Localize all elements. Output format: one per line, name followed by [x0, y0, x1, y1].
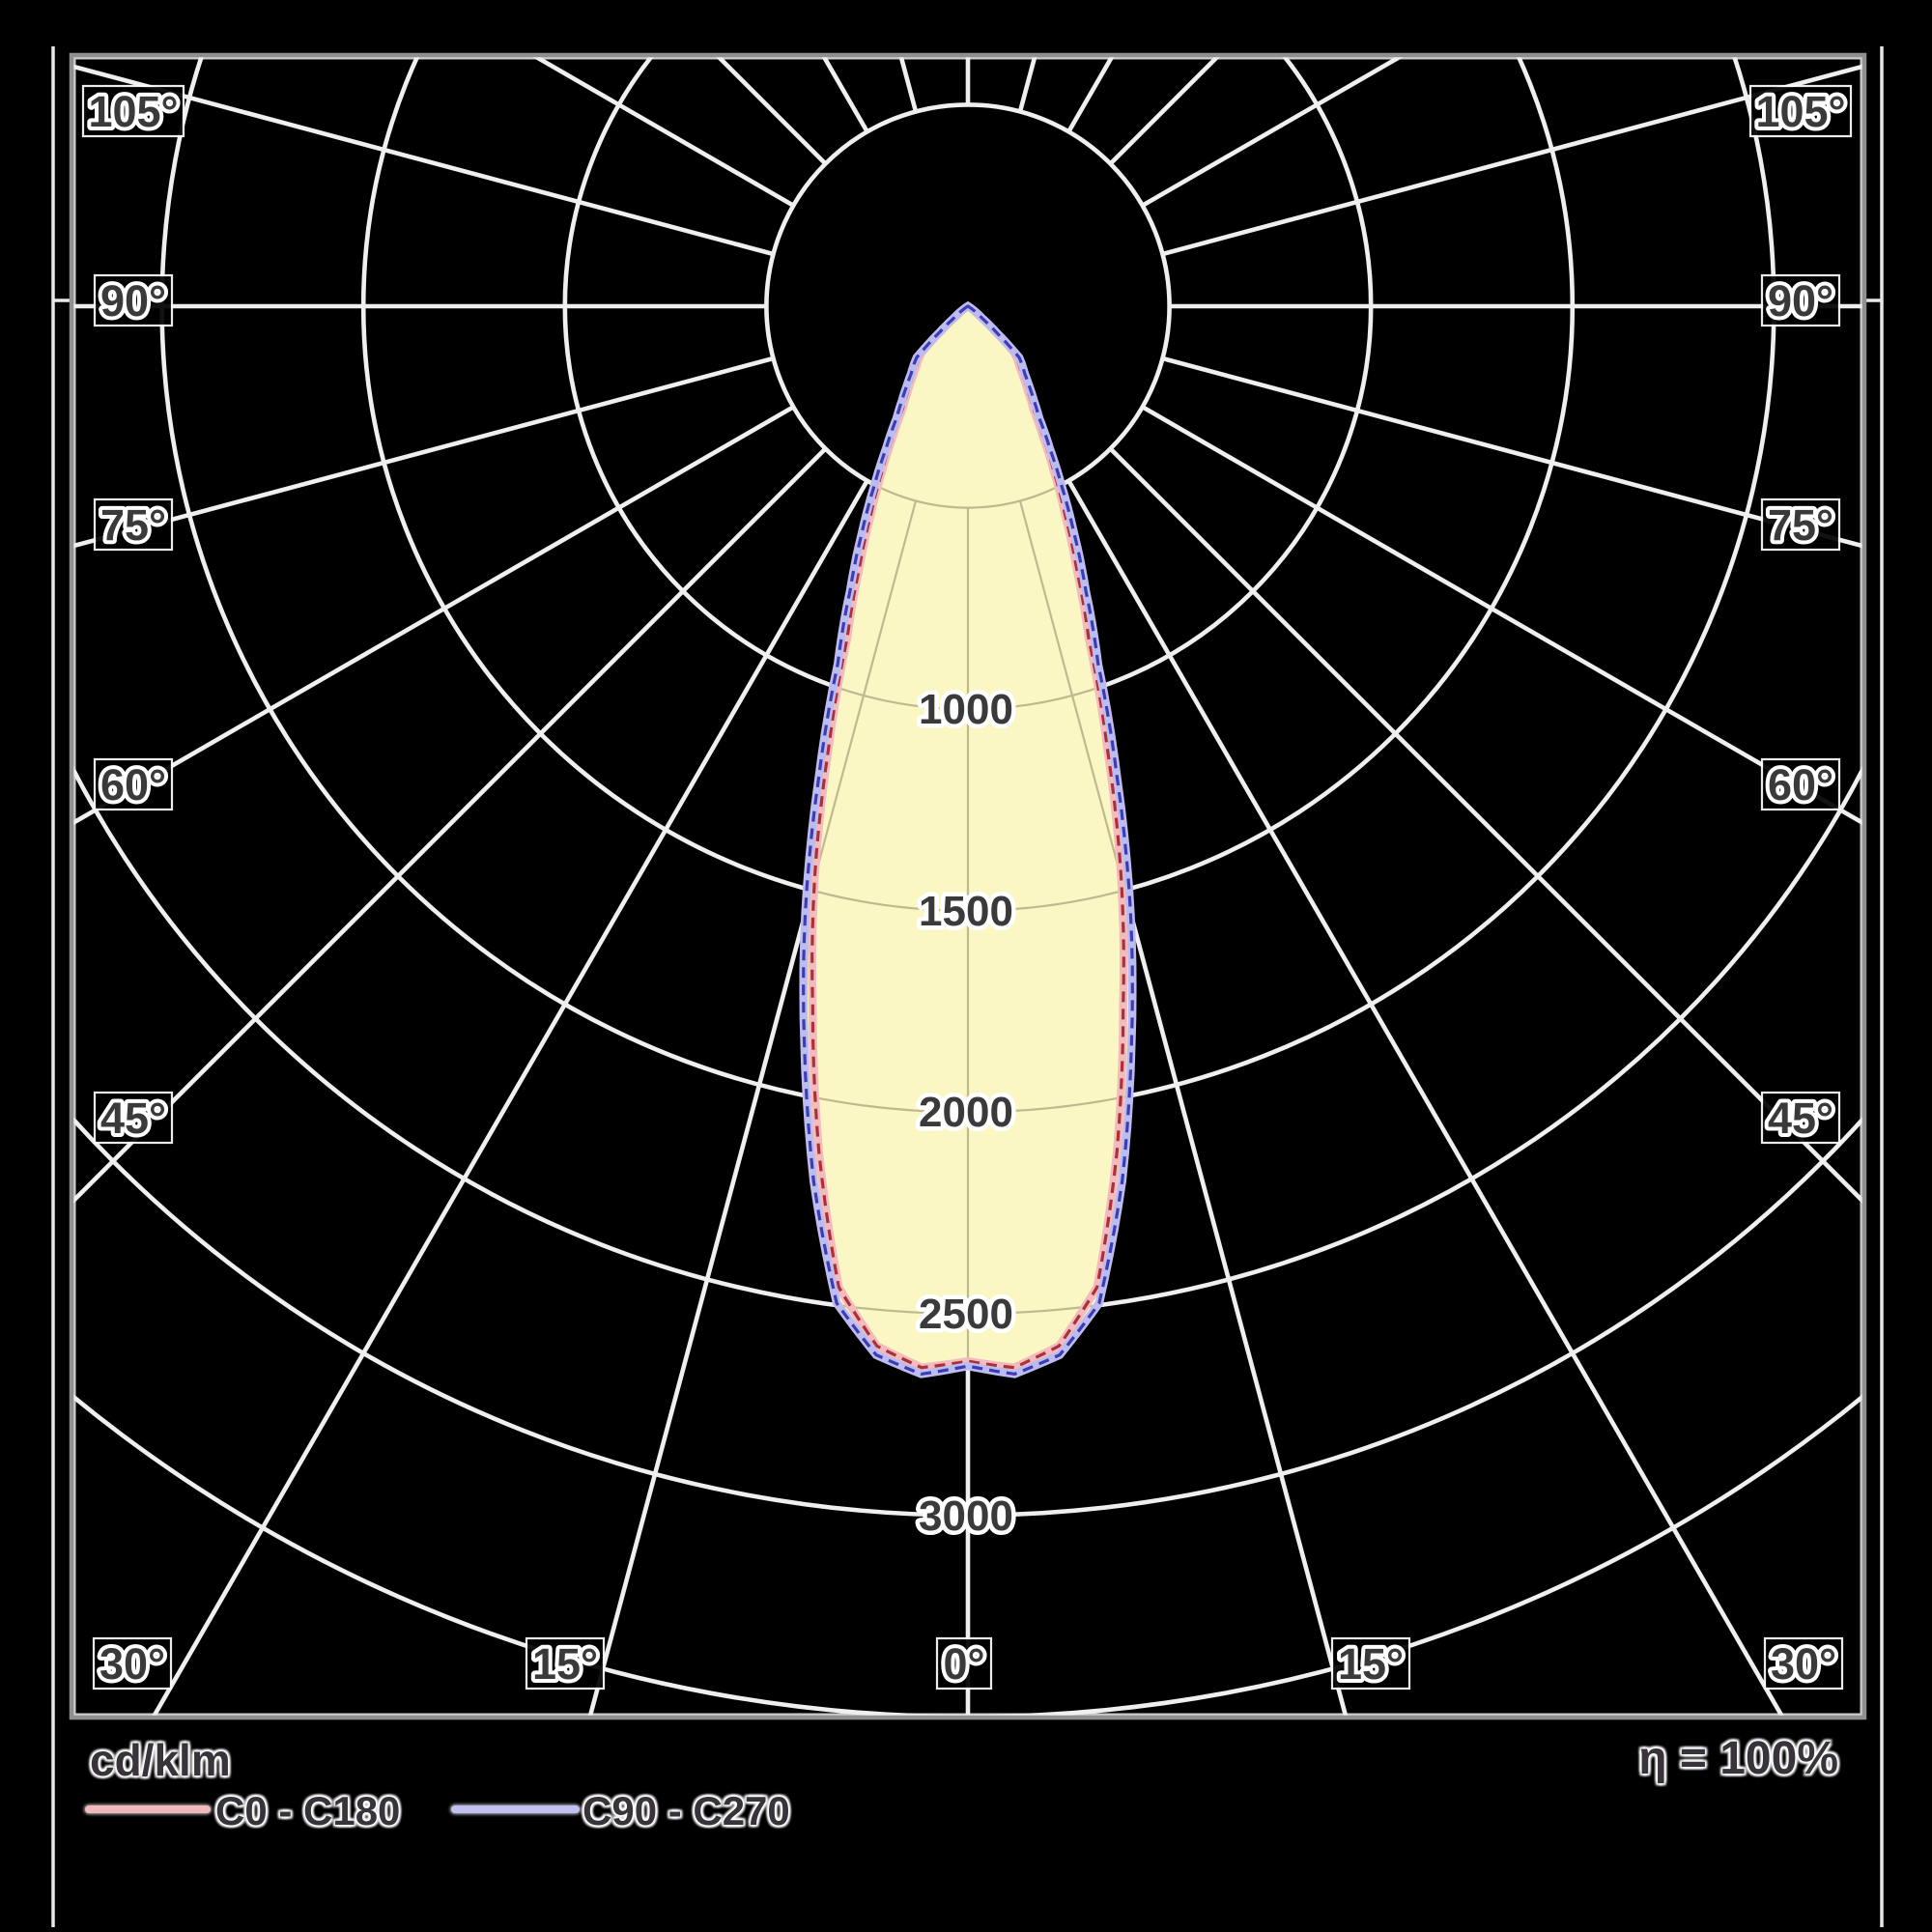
svg-text:45°: 45°: [100, 1094, 166, 1143]
angle-label: 15°: [1332, 1638, 1409, 1689]
svg-text:60°: 60°: [1768, 760, 1833, 810]
svg-text:75°: 75°: [100, 500, 166, 550]
angle-label: 90°: [1762, 275, 1839, 326]
legend-swatch-c0-c180: [85, 1805, 211, 1813]
svg-text:30°: 30°: [1771, 1639, 1836, 1689]
svg-text:0°: 0°: [943, 1639, 984, 1689]
angle-label: 45°: [1762, 1093, 1839, 1143]
svg-text:105°: 105°: [1755, 87, 1845, 136]
svg-text:45°: 45°: [1768, 1094, 1833, 1143]
svg-text:15°: 15°: [532, 1639, 598, 1689]
svg-text:105°: 105°: [88, 87, 178, 136]
angle-label: 15°: [526, 1638, 604, 1689]
svg-text:2000: 2000: [919, 1089, 1013, 1136]
legend-label-c0-c180: C0 - C180: [215, 1787, 400, 1835]
angle-label: 45°: [95, 1093, 172, 1143]
angle-label: 60°: [95, 759, 172, 810]
svg-text:30°: 30°: [99, 1639, 165, 1689]
angle-label: 30°: [94, 1638, 171, 1689]
angle-label: 75°: [95, 499, 172, 550]
svg-text:60°: 60°: [100, 760, 166, 810]
efficiency-label: η = 100%: [1638, 1732, 1838, 1786]
angle-label: 105°: [1750, 86, 1851, 136]
svg-text:2500: 2500: [919, 1291, 1013, 1338]
photometric-polar-diagram: 10001500200025003000105°90°75°60°45°105°…: [0, 0, 1932, 1932]
svg-text:1000: 1000: [919, 686, 1013, 733]
angle-label: 60°: [1762, 759, 1839, 810]
svg-text:15°: 15°: [1338, 1639, 1404, 1689]
angle-label: 0°: [937, 1638, 991, 1689]
svg-text:75°: 75°: [1768, 500, 1833, 550]
svg-text:1500: 1500: [919, 888, 1013, 935]
angle-label: 30°: [1765, 1638, 1842, 1689]
svg-text:3000: 3000: [919, 1492, 1013, 1540]
svg-text:90°: 90°: [1768, 276, 1833, 326]
legend-swatch-c90-c270: [451, 1805, 580, 1813]
angle-label: 75°: [1762, 499, 1839, 550]
polar-chart-canvas: 10001500200025003000105°90°75°60°45°105°…: [0, 0, 1932, 1932]
svg-text:90°: 90°: [100, 276, 166, 326]
unit-label: cd/klm: [90, 1734, 231, 1786]
angle-label: 105°: [83, 86, 184, 136]
legend-label-c90-c270: C90 - C270: [582, 1787, 790, 1835]
angle-label: 90°: [95, 275, 172, 326]
